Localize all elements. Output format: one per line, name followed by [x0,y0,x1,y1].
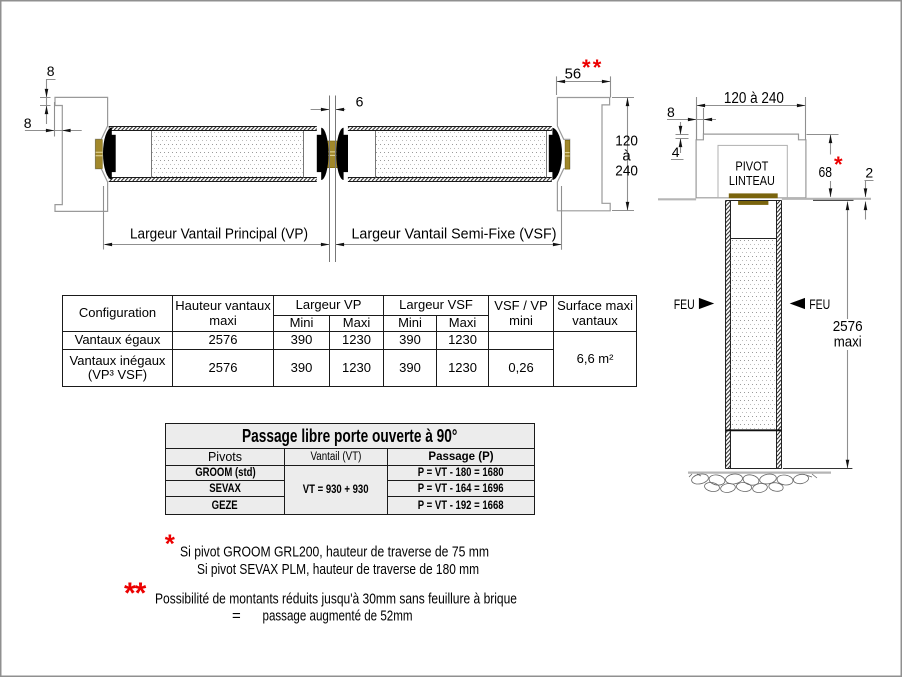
svg-text:8: 8 [667,104,675,120]
svg-text:FEU: FEU [809,297,830,312]
svg-text:8: 8 [24,115,32,131]
svg-text:2576: 2576 [833,318,863,335]
svg-text:**: ** [124,577,147,610]
svg-text:68: 68 [819,164,833,181]
svg-text:PIVOT: PIVOT [735,159,768,174]
svg-text:LINTEAU: LINTEAU [729,173,775,188]
svg-text:passage augmenté de 52mm: passage augmenté de 52mm [263,608,413,625]
svg-text:maxi: maxi [834,333,862,350]
svg-text:4: 4 [672,144,680,160]
svg-text:Largeur Vantail Semi-Fixe (VSF: Largeur Vantail Semi-Fixe (VSF) [352,227,557,243]
svg-text:6: 6 [356,93,364,109]
svg-text:*: * [834,152,843,177]
svg-text:8: 8 [47,63,55,79]
svg-text:120 à 240: 120 à 240 [724,90,784,107]
svg-text:56: 56 [565,66,582,83]
svg-text:*: * [165,529,176,559]
svg-text:240: 240 [615,163,638,180]
svg-text:FEU: FEU [674,297,695,312]
svg-text:**: ** [582,55,604,80]
svg-text:=: = [232,608,241,625]
svg-text:Si pivot SEVAX PLM, hauteur de: Si pivot SEVAX PLM, hauteur de traverse … [197,561,479,578]
svg-text:Possibilité de montants réduit: Possibilité de montants réduits jusqu'à … [155,591,517,608]
svg-text:2: 2 [865,165,873,181]
svg-text:Largeur Vantail Principal (VP): Largeur Vantail Principal (VP) [130,227,308,243]
svg-text:Si pivot GROOM GRL200, hauteur: Si pivot GROOM GRL200, hauteur de traver… [180,544,489,561]
